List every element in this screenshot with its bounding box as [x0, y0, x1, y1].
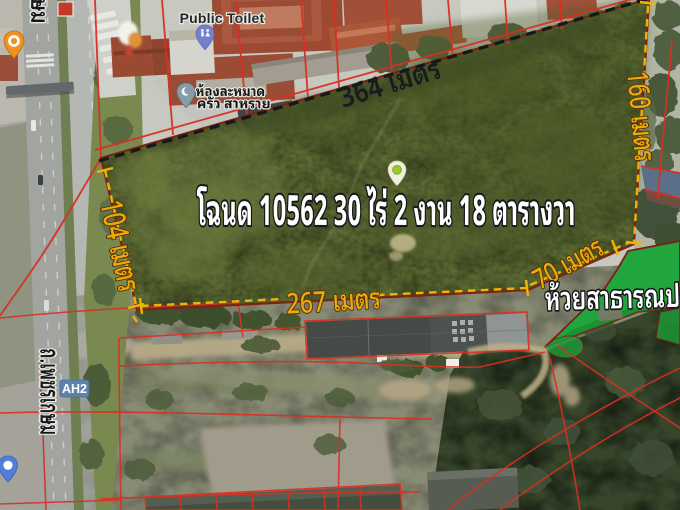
svg-text:AH2: AH2 [62, 382, 87, 396]
svg-text:Public Toilet: Public Toilet [180, 10, 265, 26]
